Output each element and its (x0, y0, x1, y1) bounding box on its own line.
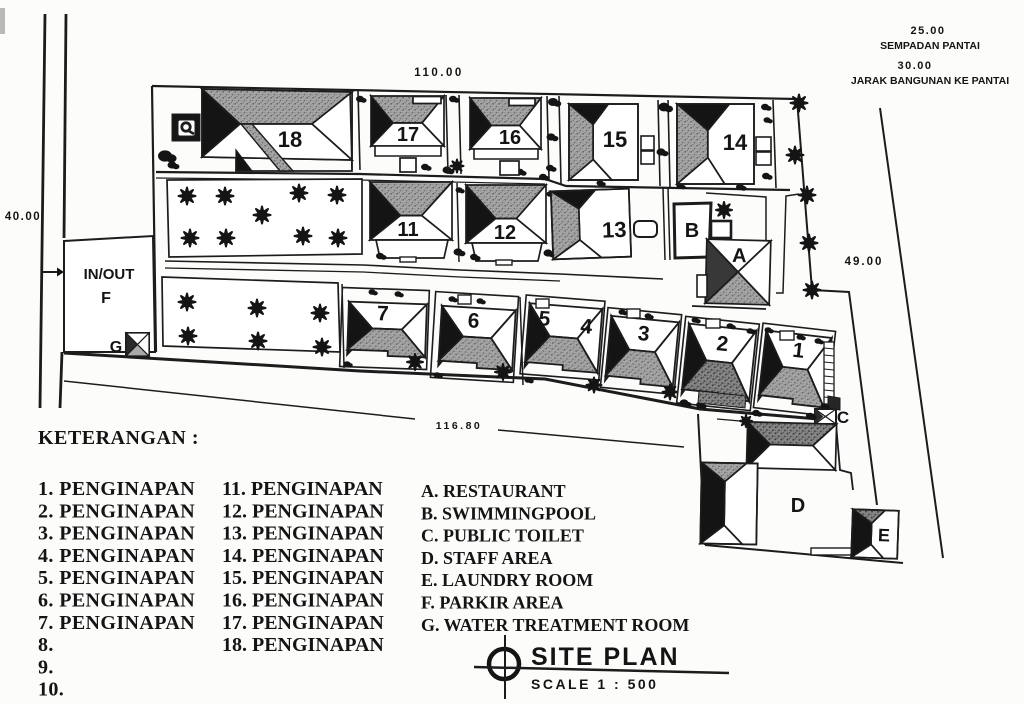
svg-text:F. PARKIR AREA: F. PARKIR AREA (421, 593, 564, 613)
svg-text:G: G (110, 339, 122, 356)
svg-text:30.00: 30.00 (897, 60, 932, 72)
svg-text:3: 3 (637, 322, 651, 346)
svg-text:B. SWIMMINGPOOL: B. SWIMMINGPOOL (421, 503, 596, 523)
svg-text:4. PENGINAPAN: 4. PENGINAPAN (38, 545, 195, 567)
svg-text:4: 4 (580, 315, 594, 339)
svg-text:49.00: 49.00 (845, 256, 884, 268)
svg-text:8.: 8. (38, 634, 54, 656)
svg-text:KETERANGAN :: KETERANGAN : (38, 427, 199, 449)
svg-text:11: 11 (397, 219, 418, 241)
svg-text:13: 13 (602, 217, 627, 243)
svg-text:17: 17 (397, 124, 419, 146)
svg-text:14: 14 (723, 130, 748, 155)
svg-text:14. PENGINAPAN: 14. PENGINAPAN (222, 545, 384, 567)
svg-text:SEMPADAN PANTAI: SEMPADAN PANTAI (880, 40, 980, 52)
svg-text:12. PENGINAPAN: 12. PENGINAPAN (222, 500, 384, 522)
svg-text:C. PUBLIC TOILET: C. PUBLIC TOILET (421, 526, 584, 546)
svg-text:40.00: 40.00 (5, 211, 41, 223)
svg-text:5. PENGINAPAN: 5. PENGINAPAN (38, 567, 195, 589)
svg-text:E. LAUNDRY ROOM: E. LAUNDRY ROOM (421, 570, 593, 590)
svg-text:F: F (101, 290, 111, 307)
svg-text:SITE PLAN: SITE PLAN (531, 643, 680, 671)
svg-text:16: 16 (499, 127, 521, 149)
svg-text:D. STAFF AREA: D. STAFF AREA (421, 548, 553, 568)
svg-text:18. PENGINAPAN: 18. PENGINAPAN (222, 634, 384, 656)
svg-text:17. PENGINAPAN: 17. PENGINAPAN (222, 612, 384, 634)
svg-text:5: 5 (538, 307, 552, 331)
svg-text:11. PENGINAPAN: 11. PENGINAPAN (222, 478, 383, 500)
svg-text:110.00: 110.00 (414, 67, 464, 79)
svg-text:16. PENGINAPAN: 16. PENGINAPAN (222, 590, 384, 612)
svg-text:9.: 9. (38, 656, 54, 678)
svg-text:A. RESTAURANT: A. RESTAURANT (421, 481, 566, 501)
svg-text:18: 18 (278, 127, 302, 152)
svg-text:15: 15 (603, 127, 627, 152)
svg-text:7: 7 (377, 302, 389, 325)
svg-text:6. PENGINAPAN: 6. PENGINAPAN (38, 590, 195, 612)
svg-text:13. PENGINAPAN: 13. PENGINAPAN (222, 523, 384, 545)
svg-text:3. PENGINAPAN: 3. PENGINAPAN (38, 523, 195, 545)
svg-text:D: D (791, 495, 805, 517)
svg-text:JARAK BANGUNAN KE PANTAI: JARAK BANGUNAN KE PANTAI (851, 75, 1009, 87)
svg-text:SCALE 1 : 500: SCALE 1 : 500 (531, 676, 658, 692)
svg-text:15. PENGINAPAN: 15. PENGINAPAN (222, 567, 384, 589)
svg-text:C: C (837, 408, 849, 427)
svg-text:1. PENGINAPAN: 1. PENGINAPAN (38, 478, 195, 500)
svg-text:IN/OUT: IN/OUT (84, 266, 135, 283)
svg-text:G. WATER TREATMENT ROOM: G. WATER TREATMENT ROOM (421, 615, 689, 635)
svg-text:7. PENGINAPAN: 7. PENGINAPAN (38, 612, 195, 634)
svg-text:A: A (732, 245, 747, 267)
svg-text:6: 6 (467, 309, 480, 333)
svg-text:B: B (685, 220, 699, 242)
svg-text:10.: 10. (38, 679, 64, 701)
svg-text:2: 2 (715, 332, 729, 356)
svg-text:12: 12 (494, 222, 516, 244)
svg-text:E: E (878, 525, 891, 545)
svg-text:25.00: 25.00 (910, 25, 945, 37)
svg-text:2. PENGINAPAN: 2. PENGINAPAN (38, 500, 195, 522)
svg-text:116.80: 116.80 (436, 420, 483, 432)
